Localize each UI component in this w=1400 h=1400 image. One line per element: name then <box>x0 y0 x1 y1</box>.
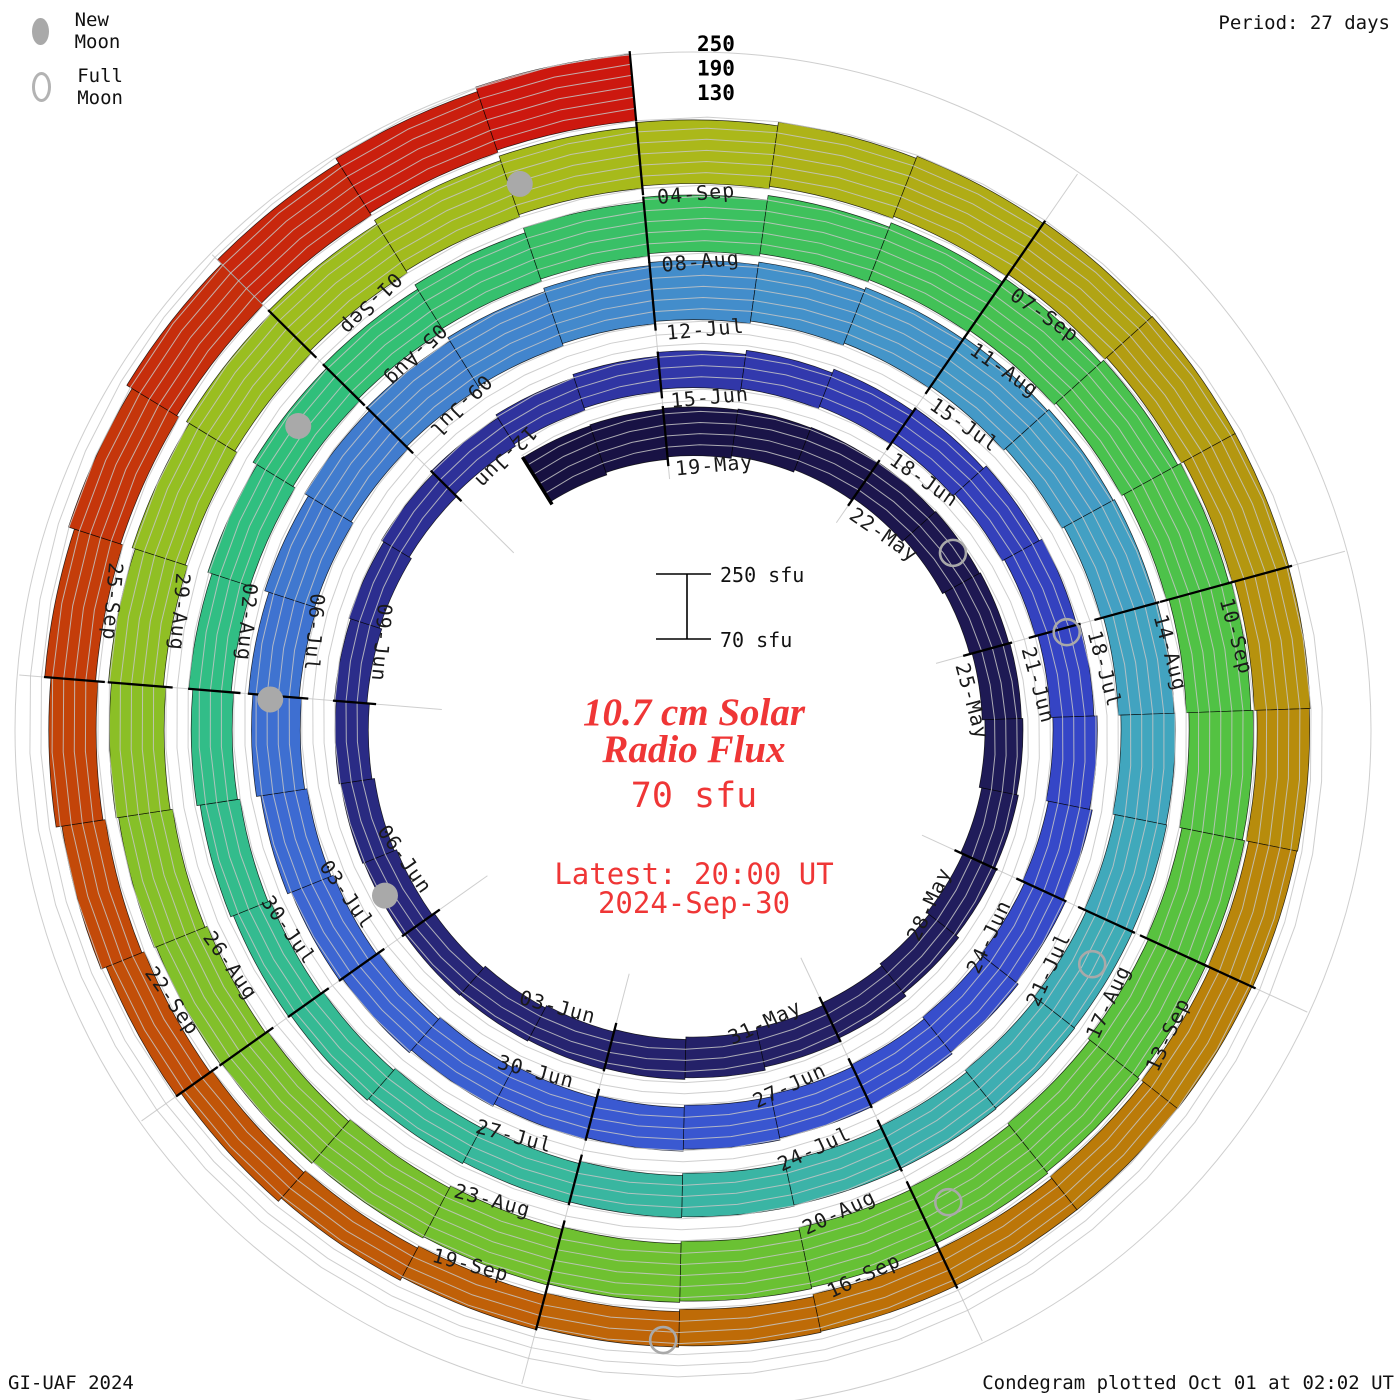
scale-top-label: 250 sfu <box>720 563 804 587</box>
credit-text: GI-UAF 2024 <box>8 1372 134 1394</box>
plotted-timestamp: Condegram plotted Oct 01 at 02:02 UT <box>982 1372 1394 1394</box>
new-moon-icon <box>32 18 49 45</box>
scale-bottom-label: 70 sfu <box>720 628 792 652</box>
legend-new-moon-row: New Moon <box>32 9 131 53</box>
latest-date: 2024-Sep-30 <box>414 889 974 918</box>
flux-day-segment <box>523 202 648 279</box>
flux-day-segment <box>548 1227 681 1302</box>
end-scale-label-190: 190 <box>697 57 735 81</box>
new-moon-label: New Moon <box>75 9 131 53</box>
chart-title-line2: Radio Flux <box>414 731 974 768</box>
chart-title-line1: 10.7 cm Solar <box>414 694 974 731</box>
new-moon-marker-05-Jul <box>257 686 283 712</box>
flux-day-segment <box>1113 713 1176 825</box>
new-moon-marker-04-Aug <box>285 413 311 439</box>
new-moon-marker-06-Jun <box>372 883 398 909</box>
chart-title: 10.7 cm Solar Radio Flux <box>414 694 974 768</box>
flux-day-segment <box>605 1030 686 1080</box>
full-moon-label: Full Moon <box>77 65 134 109</box>
flux-day-segment <box>663 407 738 459</box>
flux-day-segment <box>200 799 268 917</box>
flux-day-segment <box>335 701 372 784</box>
full-moon-icon <box>32 72 51 102</box>
period-note: Period: 27 days <box>1218 12 1390 34</box>
latest-time: Latest: 20:00 UT <box>414 860 974 889</box>
flux-day-segment <box>570 1161 683 1218</box>
new-moon-marker-03-Sep <box>507 171 533 197</box>
latest-observation: Latest: 20:00 UT 2024-Sep-30 <box>414 860 974 918</box>
flux-day-segment <box>49 678 103 828</box>
flux-day-segment <box>191 689 237 805</box>
flux-day-segment <box>636 120 778 189</box>
condegram-page: 19-May22-May25-May28-May31-May03-Jun06-J… <box>0 0 1400 1400</box>
flux-day-segment <box>680 1230 812 1301</box>
flux-day-segment <box>109 683 170 818</box>
end-scale-label-250: 250 <box>697 32 735 56</box>
current-flux-value: 70 sfu <box>414 776 974 816</box>
flux-day-segment <box>544 266 655 344</box>
legend-full-moon-row: Full Moon <box>32 65 134 109</box>
flux-day-segment <box>1046 716 1097 810</box>
flux-day-segment <box>679 1297 821 1346</box>
end-scale-label-130: 130 <box>697 81 735 105</box>
